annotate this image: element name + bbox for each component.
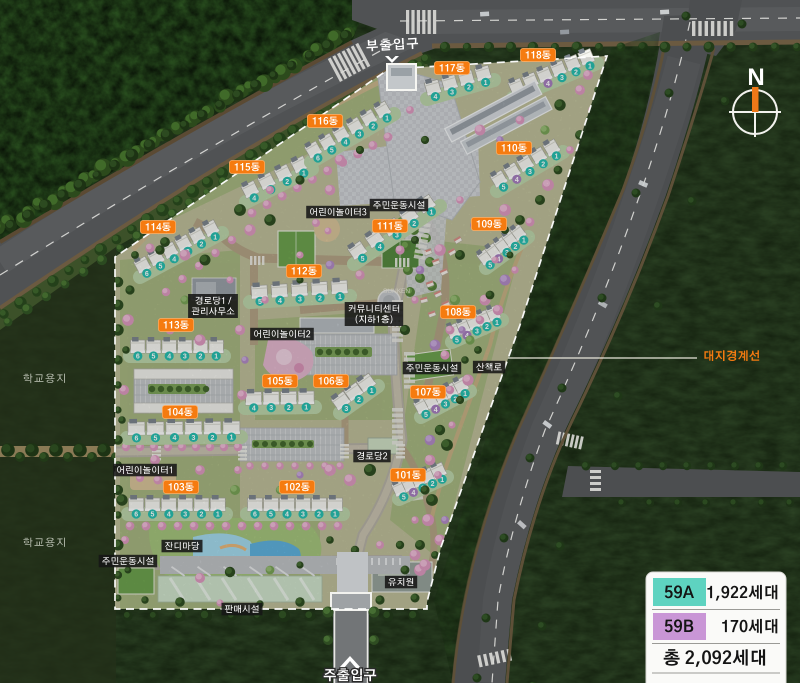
svg-text:N: N [747, 64, 764, 91]
